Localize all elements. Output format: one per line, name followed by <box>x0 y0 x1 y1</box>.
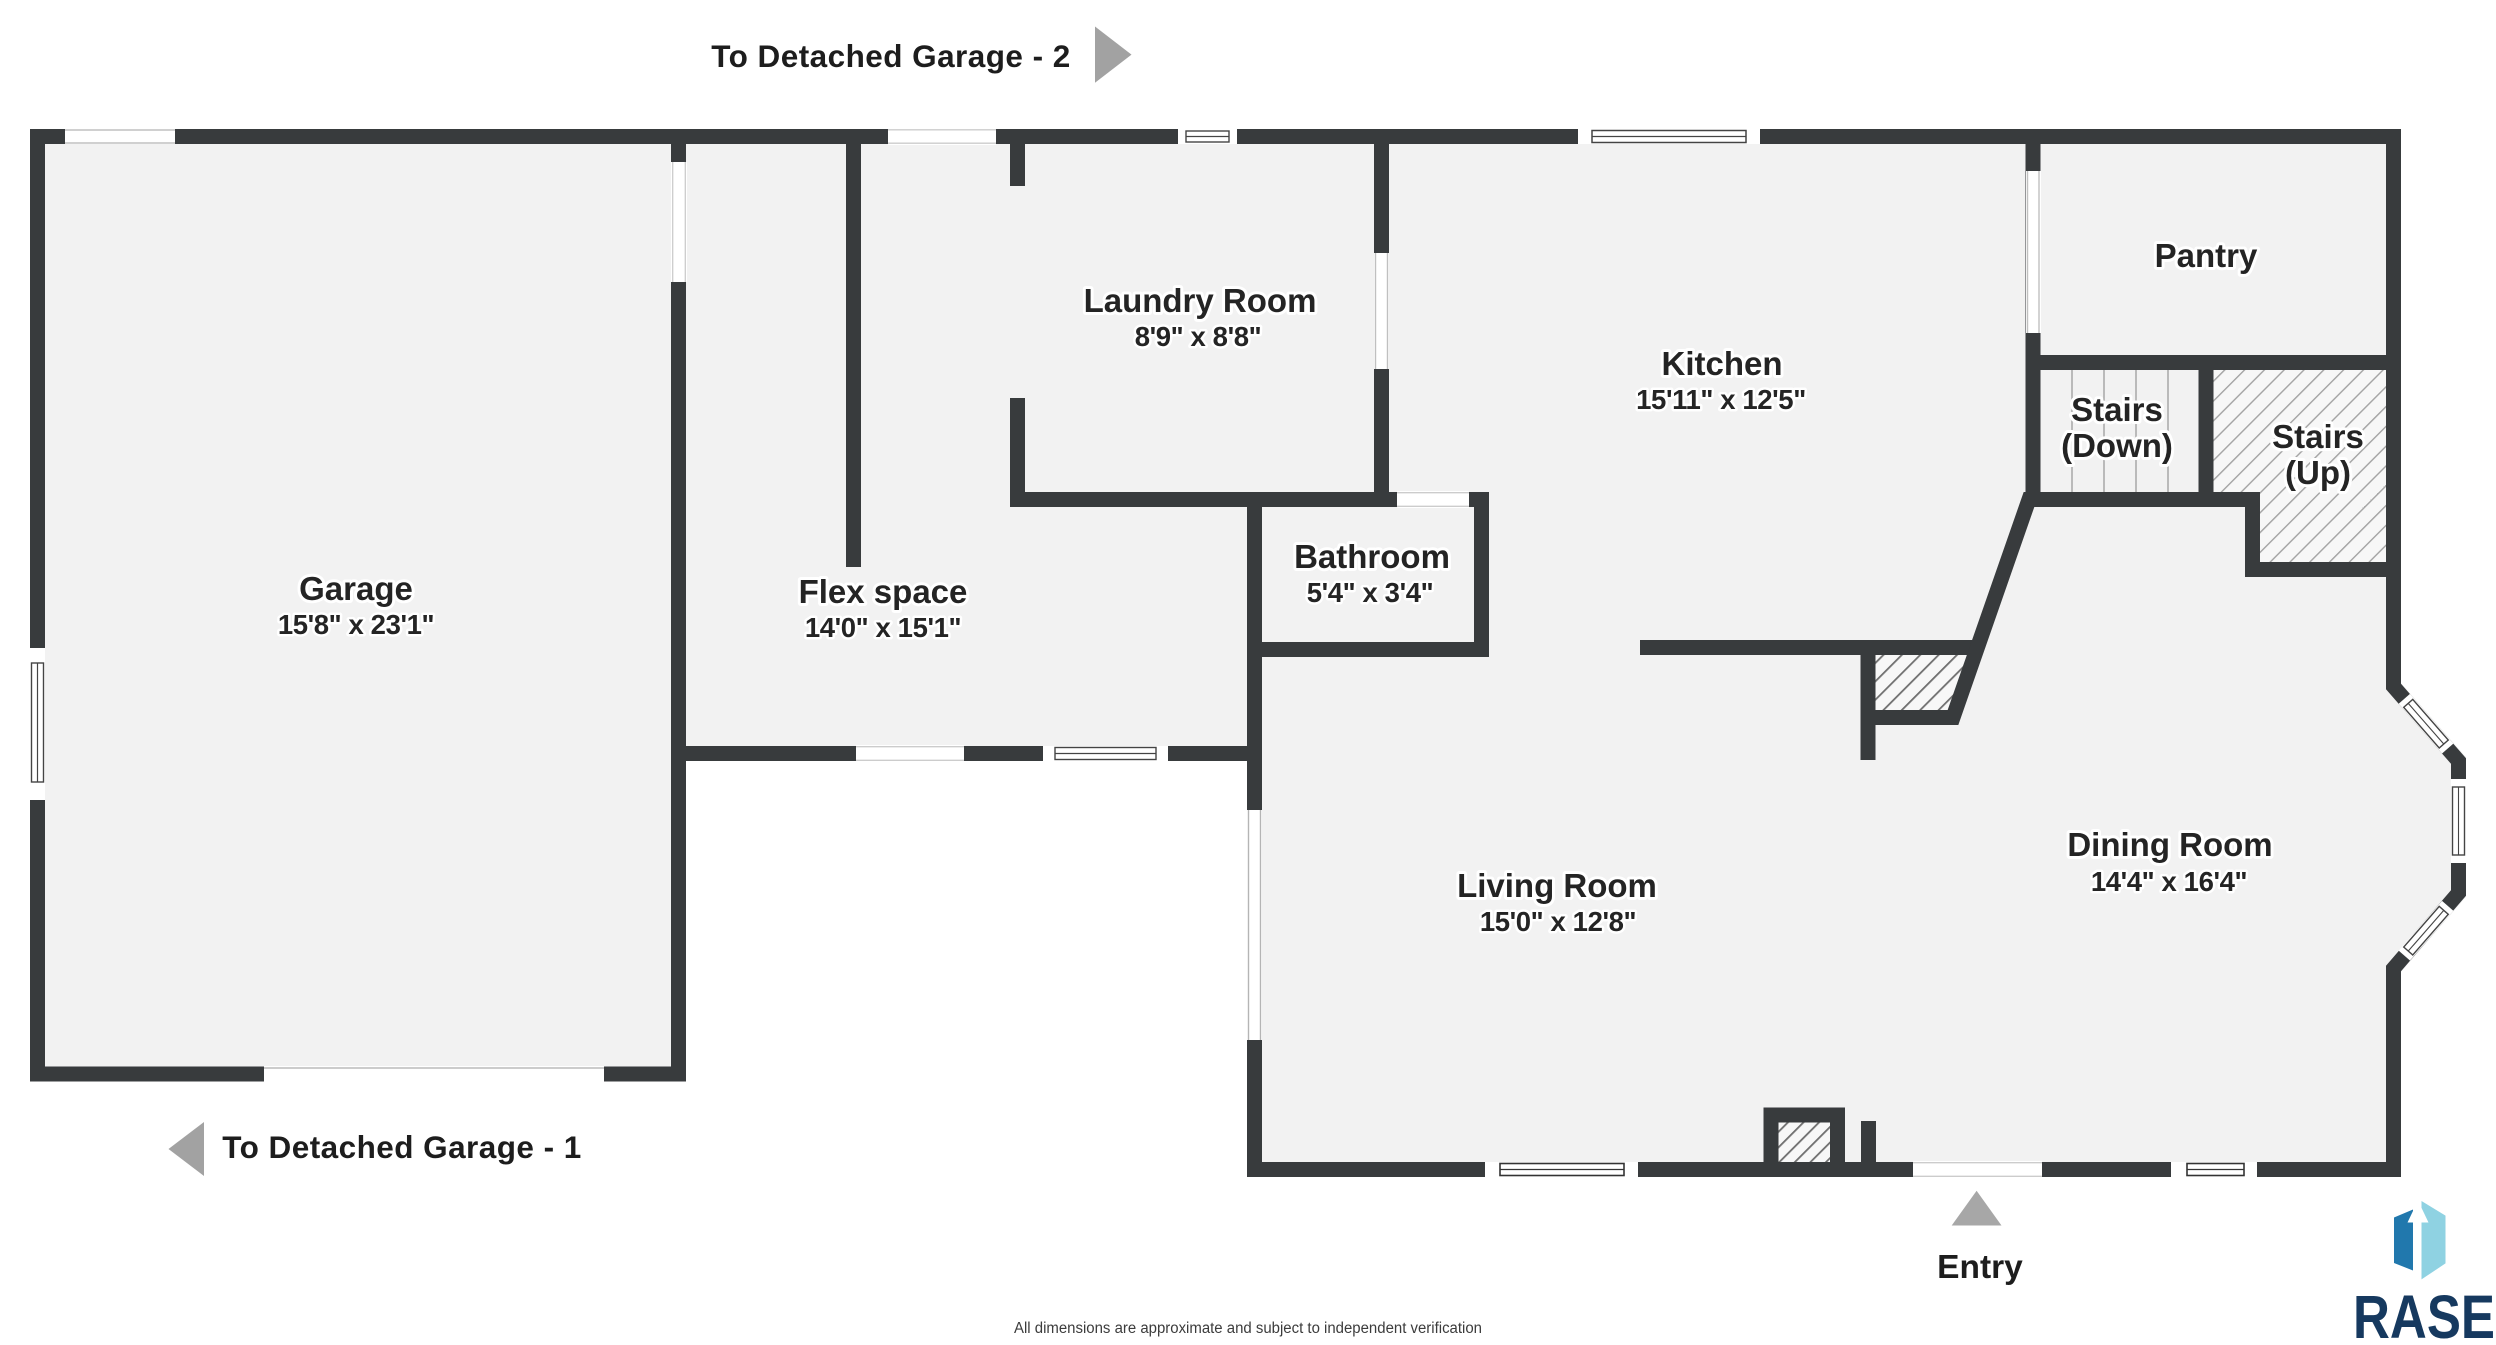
svg-text:5'4" x 3'4": 5'4" x 3'4" <box>1307 577 1434 608</box>
svg-text:Entry: Entry <box>1937 1249 2023 1286</box>
svg-text:Dining Room: Dining Room <box>2067 826 2272 863</box>
svg-text:To Detached Garage - 1: To Detached Garage - 1 <box>222 1129 581 1165</box>
svg-text:Garage: Garage <box>299 570 413 607</box>
svg-text:15'11" x 12'5": 15'11" x 12'5" <box>1636 384 1806 415</box>
svg-text:Stairs: Stairs <box>2071 391 2163 428</box>
svg-text:Bathroom: Bathroom <box>1294 538 1450 575</box>
svg-text:Laundry Room: Laundry Room <box>1084 282 1317 319</box>
svg-text:Kitchen: Kitchen <box>1661 345 1782 382</box>
svg-text:Flex space: Flex space <box>799 573 968 610</box>
svg-text:RASE: RASE <box>2353 1283 2495 1345</box>
svg-text:Living Room: Living Room <box>1457 867 1657 904</box>
svg-text:Pantry: Pantry <box>2155 237 2258 274</box>
svg-text:15'0" x 12'8": 15'0" x 12'8" <box>1480 906 1636 937</box>
svg-text:Stairs: Stairs <box>2272 418 2364 455</box>
svg-text:(Down): (Down) <box>2061 427 2173 464</box>
svg-text:(Up): (Up) <box>2285 454 2351 491</box>
svg-text:14'0" x 15'1": 14'0" x 15'1" <box>805 612 961 643</box>
svg-text:8'9" x 8'8": 8'9" x 8'8" <box>1135 321 1262 352</box>
svg-text:14'4" x 16'4": 14'4" x 16'4" <box>2091 866 2247 897</box>
svg-text:15'8" x 23'1": 15'8" x 23'1" <box>278 609 434 640</box>
svg-text:All dimensions are approximate: All dimensions are approximate and subje… <box>1014 1320 1482 1337</box>
svg-text:To Detached Garage - 2: To Detached Garage - 2 <box>711 38 1070 74</box>
